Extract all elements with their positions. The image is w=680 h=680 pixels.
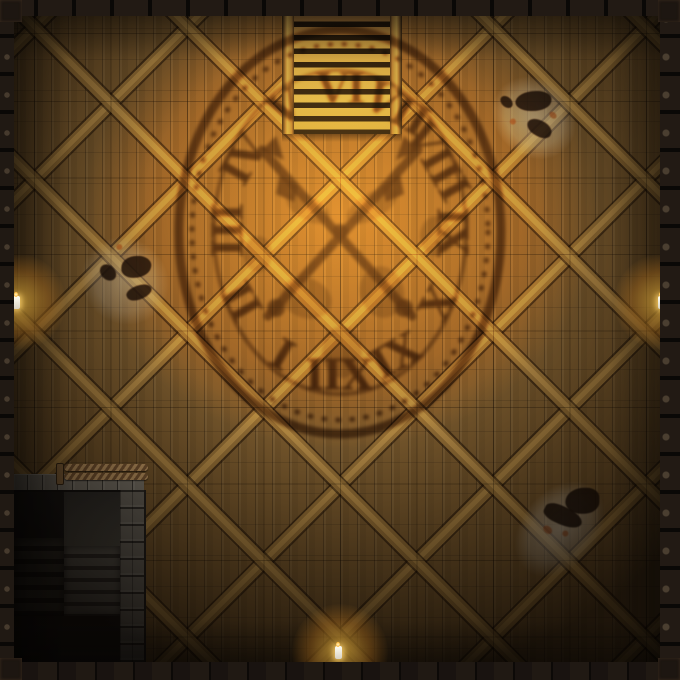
iron-border-right <box>660 0 680 680</box>
candle-flame-icon <box>14 292 18 297</box>
battle-map-canvas[interactable]: VI VII VIII IX X XI XII I II III IV V <box>0 0 680 680</box>
iron-border-top <box>0 0 680 16</box>
candle-left <box>13 296 20 309</box>
candle-bottom <box>335 646 342 659</box>
border-corner-top-left <box>0 0 22 22</box>
iron-border-left <box>0 0 14 680</box>
candle-flame-icon <box>336 642 340 647</box>
vignette-shadow <box>0 0 680 680</box>
border-corner-top-right <box>658 0 680 22</box>
border-corner-bottom-left <box>0 658 22 680</box>
border-corner-bottom-right <box>658 658 680 680</box>
iron-border-bottom <box>0 662 680 680</box>
